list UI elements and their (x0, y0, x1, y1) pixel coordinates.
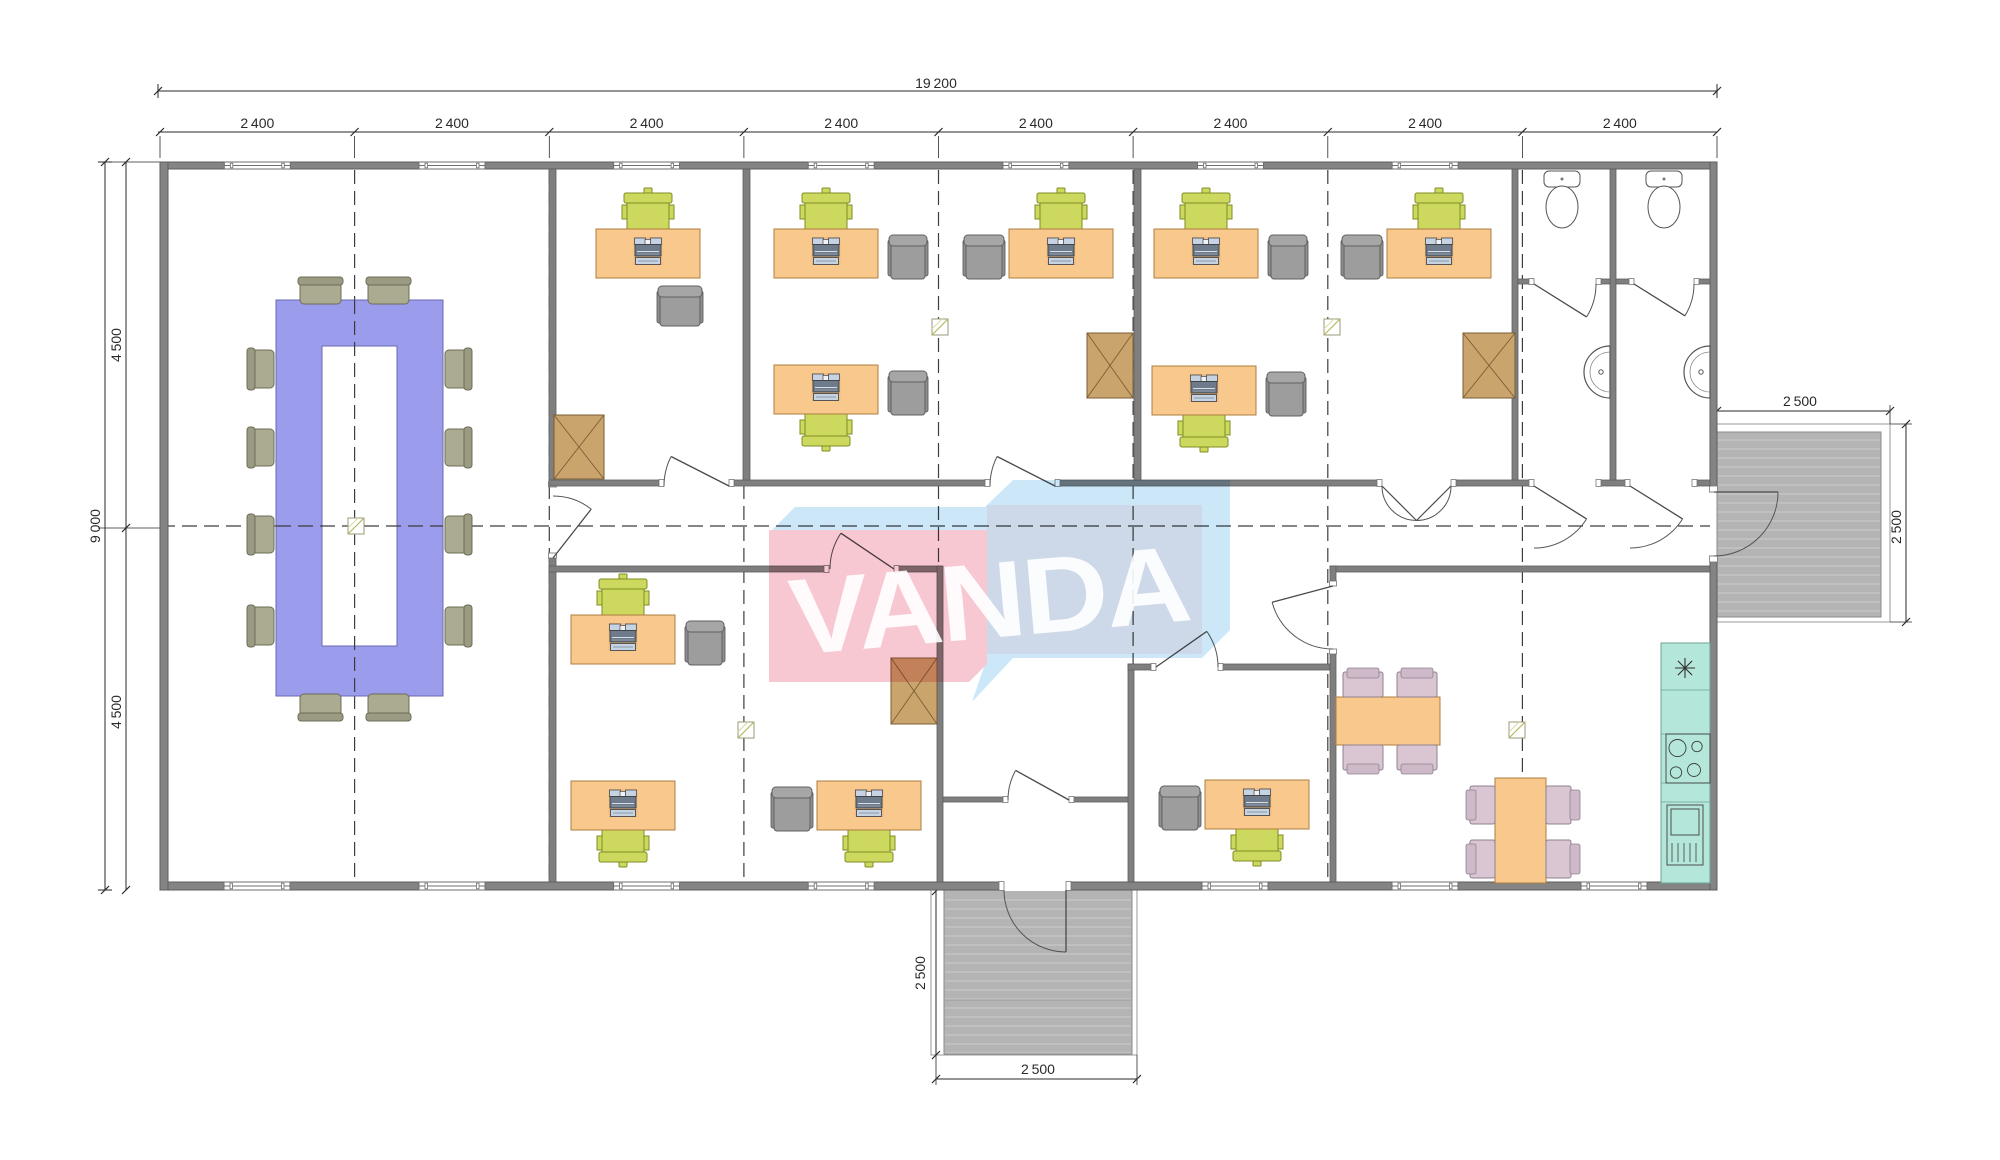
svg-text:2 400: 2 400 (1214, 115, 1248, 131)
svg-text:2 400: 2 400 (824, 115, 858, 131)
svg-text:2 500: 2 500 (912, 956, 928, 990)
svg-text:19 200: 19 200 (915, 75, 957, 91)
svg-text:2 500: 2 500 (1021, 1061, 1055, 1077)
svg-text:4 500: 4 500 (108, 328, 124, 362)
svg-text:2 400: 2 400 (1603, 115, 1637, 131)
svg-text:2 400: 2 400 (240, 115, 274, 131)
svg-text:2 400: 2 400 (1019, 115, 1053, 131)
svg-text:2 400: 2 400 (435, 115, 469, 131)
svg-text:2 400: 2 400 (630, 115, 664, 131)
svg-text:2 400: 2 400 (1408, 115, 1442, 131)
svg-text:2 500: 2 500 (1888, 510, 1904, 544)
svg-text:9 000: 9 000 (87, 509, 103, 543)
svg-text:4 500: 4 500 (108, 695, 124, 729)
svg-text:2 500: 2 500 (1783, 393, 1817, 409)
